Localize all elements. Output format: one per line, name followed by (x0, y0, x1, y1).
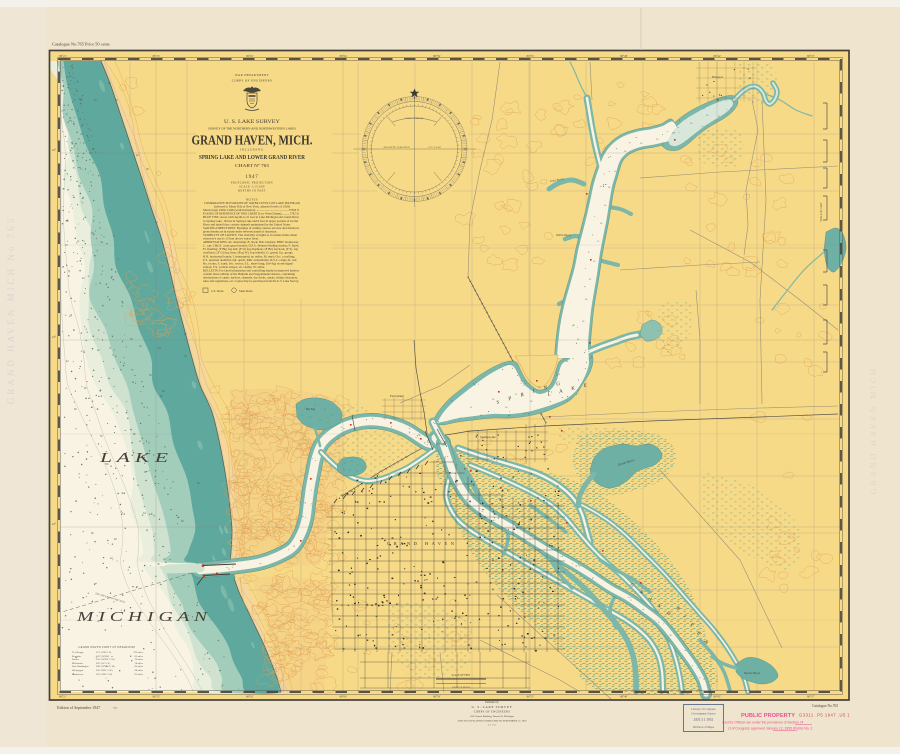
svg-text:Port Washington: Port Washington (72, 665, 89, 668)
svg-text:86°21´: 86°21´ (59, 696, 67, 699)
svg-text:SCALE 1:15,000: SCALE 1:15,000 (239, 186, 265, 189)
svg-text:253° (WSW ¾ W): 253° (WSW ¾ W) (96, 658, 115, 661)
svg-text:ct of Congress approved Januar: ct of Congress approved January 12, 1895… (728, 727, 813, 731)
svg-text:DEPTHS IN FEET: DEPTHS IN FEET (238, 190, 266, 193)
svg-text:PUBLIC PROPERTY: PUBLIC PROPERTY (741, 713, 795, 719)
svg-text:HALF COMPASS: HALF COMPASS (406, 117, 424, 120)
svg-text:G3311 .P5 1947 .U5 1: G3311 .P5 1947 .U5 1 (799, 713, 850, 718)
svg-text:To Chicago: To Chicago (72, 651, 84, 654)
svg-text:station; V.S. vertical stripes: station; V.S. vertical stripes; str. vis… (203, 266, 265, 269)
svg-text:med for Official use under the: med for Official use under the provision… (722, 721, 803, 725)
svg-text:Smiths Bayou: Smiths Bayou (556, 234, 572, 237)
svg-text:43°: 43° (52, 149, 56, 152)
svg-text:630 Federal Building, Detroit: 630 Federal Building, Detroit 26, Michig… (470, 715, 514, 718)
svg-text:1947: 1947 (245, 175, 258, 180)
svg-text:2°25´ E 1947: 2°25´ E 1947 (428, 146, 442, 149)
svg-text:86°48´: 86°48´ (620, 55, 628, 58)
svg-text:C. can; C&GS. coast guard stat: C. can; C&GS. coast guard station; D.F.S… (203, 245, 299, 248)
svg-text:Racine: Racine (72, 658, 80, 661)
svg-text:U. S. LAKE SURVEY: U. S. LAKE SURVEY (224, 120, 281, 125)
svg-text:86°48´: 86°48´ (620, 696, 628, 699)
svg-text:86°53´: 86°53´ (527, 696, 535, 699)
svg-text:MAGNETIC VARIATION: MAGNETIC VARIATION (384, 146, 410, 149)
svg-text:L.S. 3-47: L.S. 3-47 (488, 725, 497, 727)
svg-text:NOTES: NOTES (246, 198, 258, 202)
svg-text:JAN 3 1 1951: JAN 3 1 1951 (693, 718, 713, 722)
svg-text:Edition of September 1947: Edition of September 1947 (57, 705, 100, 710)
svg-text:AIDS TO NAVIGATION CORRECTED T: AIDS TO NAVIGATION CORRECTED TO SEPTEMBE… (457, 720, 527, 723)
svg-text:86°10´: 86°10´ (246, 696, 254, 699)
svg-text:Catalogue No.765: Catalogue No.765 (812, 704, 838, 708)
svg-text:River and tinted blue; certain: River and tinted blue; certain channels … (203, 223, 291, 226)
svg-text:CORPS OF ENGINEERS: CORPS OF ENGINEERS (474, 711, 511, 714)
svg-text:SPRING LAKE AND LOWER GRAND RI: SPRING LAKE AND LOWER GRAND RIVER (199, 154, 305, 161)
svg-text:observer's eye is 15 feet abov: observer's eye is 15 feet above water le… (203, 238, 259, 241)
svg-text:86°04´: 86°04´ (340, 696, 348, 699)
svg-text:COMPARATIVE ELEVATIONS OF WATE: COMPARATIVE ELEVATIONS OF WATER LEVELS O… (204, 202, 300, 205)
svg-text:86°04´: 86°04´ (340, 55, 348, 58)
svg-text:U.S. Route: U.S. Route (211, 289, 224, 293)
svg-text:86°59´: 86°59´ (433, 696, 441, 699)
svg-text:SCALE OF FEET: SCALE OF FEET (451, 674, 470, 677)
svg-text:SCALE OF FEET: SCALE OF FEET (820, 202, 823, 222)
svg-text:81 miles: 81 miles (134, 665, 143, 668)
svg-text:Sheboygan: Sheboygan (72, 669, 84, 672)
svg-text:GRAND HAVEN POINT OF DEPARTURE: GRAND HAVEN POINT OF DEPARTURE (78, 646, 135, 649)
svg-text:86°37´: 86°37´ (807, 696, 815, 699)
svg-text:86°37´: 86°37´ (807, 55, 815, 58)
svg-text:232 miles: 232 miles (133, 651, 143, 654)
svg-text:Ferrysburg: Ferrysburg (390, 394, 404, 398)
svg-text:86°42´: 86°42´ (714, 55, 722, 58)
svg-text:Fruitport: Fruitport (712, 75, 723, 79)
svg-text:GRAND HAVEN: GRAND HAVEN (387, 541, 457, 546)
svg-text:INCLUDING: INCLUDING (240, 148, 264, 152)
svg-text:86°59´: 86°59´ (433, 55, 441, 58)
svg-text:Division of Maps: Division of Maps (693, 725, 715, 729)
svg-text:oscillator; (F G) fog siren;: oscillator; (F G) fog siren; (Fog W). fo… (203, 252, 293, 255)
svg-text:rules and regulations, etc. Co: rules and regulations, etc. Copies may b… (203, 280, 299, 283)
svg-text:Spring Lake: Spring Lake (480, 435, 496, 439)
svg-text:43°: 43° (52, 336, 56, 339)
svg-text:State Route: State Route (239, 289, 253, 293)
svg-text:95 miles: 95 miles (134, 673, 143, 676)
svg-text:86°10´: 86°10´ (246, 55, 254, 58)
svg-text:SURVEY OF THE NORTHERN AND NOR: SURVEY OF THE NORTHERN AND NORTHWESTERN … (208, 128, 297, 131)
svg-text:212° (SW ½ S): 212° (SW ½ S) (96, 651, 111, 654)
svg-text:U. S. LAKE SURVEY: U. S. LAKE SURVEY (471, 705, 512, 709)
svg-text:consult latest edition of the: consult latest edition of the Bulletin a… (203, 273, 296, 276)
svg-text:M I C H I G A N: M I C H I G A N (76, 610, 208, 625)
svg-text:Mean stage 1900–1946 (with inc: Mean stage 1900–1946 (with inclusive)...… (203, 209, 299, 212)
svg-text:Manitowoc: Manitowoc (72, 673, 84, 676)
svg-text:94 miles: 94 miles (134, 669, 143, 672)
svg-text:319° (NW ¾ N): 319° (NW ¾ N) (96, 673, 112, 676)
svg-text:302° (NW ¾ W): 302° (NW ¾ W) (96, 669, 113, 672)
svg-text:86°15´: 86°15´ (153, 696, 161, 699)
svg-text:Government Source: Government Source (691, 712, 716, 716)
svg-text:GRAND HAVEN MICH: GRAND HAVEN MICH (869, 366, 878, 494)
svg-text:P S. position doubtful; Qk. qu: P S. position doubtful; Qk. quick; Rkh. … (203, 259, 297, 262)
svg-text:CORPS OF ENGINEERS: CORPS OF ENGINEERS (232, 79, 273, 83)
svg-text:WAR DEPARTMENT: WAR DEPARTMENT (235, 73, 269, 77)
svg-text:Stearns Bayou: Stearns Bayou (744, 672, 761, 675)
svg-text:POLYCONIC PROJECTION: POLYCONIC PROJECTION (231, 182, 273, 185)
svg-text:L A K E: L A K E (98, 451, 168, 466)
svg-text:given therein are in statute m: given therein are in statute miles betwe… (203, 230, 277, 233)
svg-text:Big Bog: Big Bog (306, 408, 316, 411)
svg-text:BLUE TINT: Areas with depths: BLUE TINT: Areas with depths to 21 feet … (203, 216, 299, 219)
svg-text:43°: 43° (52, 523, 56, 526)
svg-text:GRAND HAVEN, MICH.: GRAND HAVEN, MICH. (192, 133, 313, 148)
svg-text:Library of Congress: Library of Congress (691, 707, 716, 711)
svg-text:86°53´: 86°53´ (527, 55, 535, 58)
svg-text:GRAND HAVEN MICH No 765: GRAND HAVEN MICH No 765 (6, 216, 16, 404)
svg-text:86°15´: 86°15´ (153, 55, 161, 58)
svg-text:86°21´: 86°21´ (59, 55, 67, 58)
svg-text:280° (WNW ¼ W): 280° (WNW ¼ W) (96, 665, 115, 668)
svg-text:Catalogue No.765 Price 50 ce: Catalogue No.765 Price 50 cents (52, 42, 110, 47)
svg-text:76 miles: 76 miles (134, 658, 143, 661)
svg-text:Published by: Published by (485, 701, 499, 704)
svg-text:86°42´: 86°42´ (714, 696, 722, 699)
svg-text:STATUTE MILES: STATUTE MILES (452, 686, 471, 689)
svg-text:CHART Nº 765: CHART Nº 765 (235, 163, 270, 168)
